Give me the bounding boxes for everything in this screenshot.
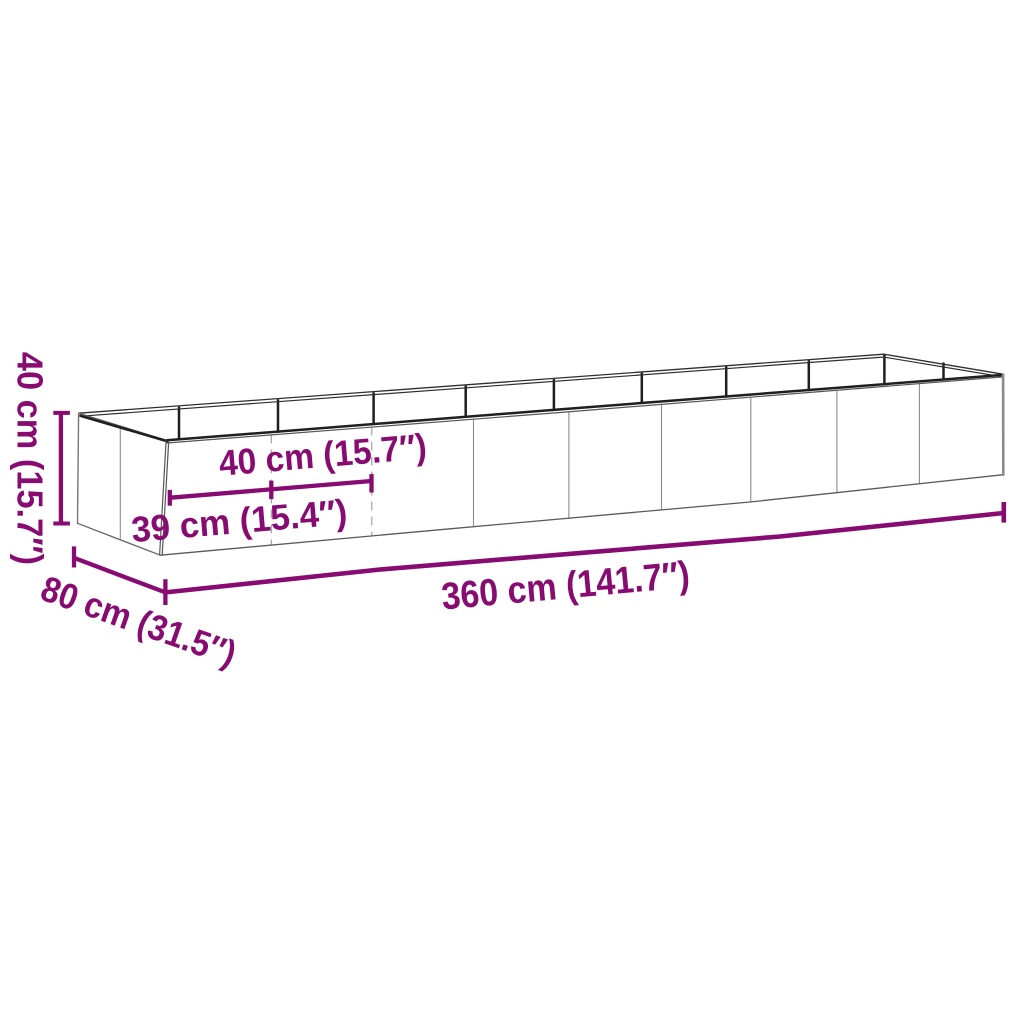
svg-text:40 cm (15.7″): 40 cm (15.7″) [10,352,50,565]
